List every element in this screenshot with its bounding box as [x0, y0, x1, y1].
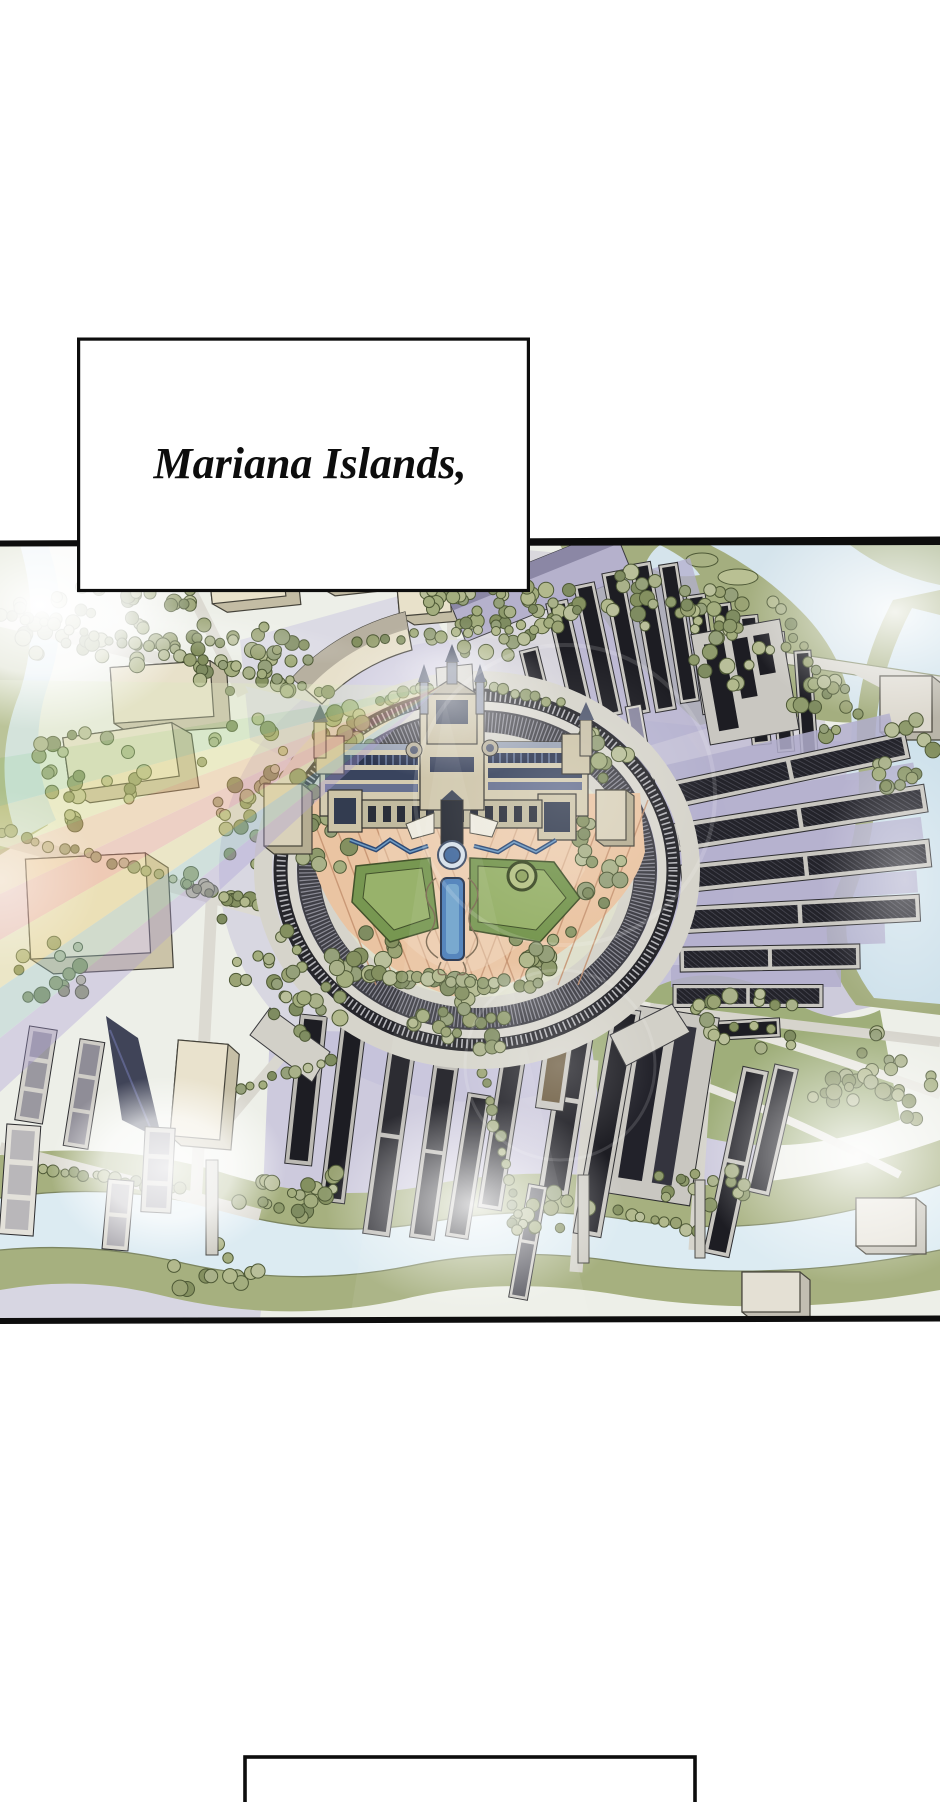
svg-text:Mariana Islands,: Mariana Islands,	[152, 439, 466, 488]
